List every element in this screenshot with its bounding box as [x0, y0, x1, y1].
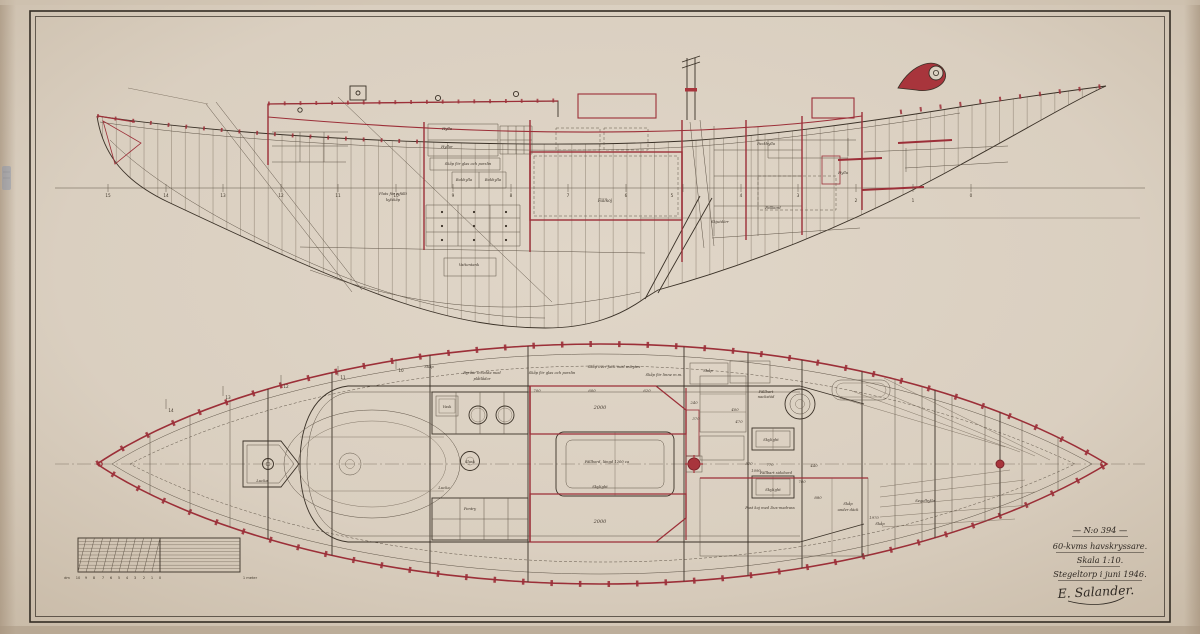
label-fallbord: Fällbord	[764, 206, 781, 210]
dim: 780	[798, 479, 806, 484]
station-number: 14	[163, 193, 169, 198]
label-lucka: Lucka	[437, 486, 449, 490]
label-fallbord: Fällbord, längd 1200 ca	[584, 460, 629, 464]
station-number: 8	[510, 193, 513, 198]
dim: 620	[643, 388, 651, 393]
station-number: 12	[283, 384, 289, 389]
dim: 570	[745, 461, 753, 466]
drawing-number: — N:o 394 —	[1073, 525, 1127, 535]
label-skylight: Skylight	[763, 438, 779, 442]
label-byraar: Byråar inredda med	[462, 370, 501, 375]
label-bokhylla: Bokhylla	[455, 178, 472, 182]
label-hylla: Hylla	[441, 127, 452, 131]
label-nackstod: Fällbart	[758, 390, 774, 394]
label-skjutdorr: Skjutdörr	[711, 220, 729, 224]
station-number: 15	[105, 193, 111, 198]
label-pentry: Pentry	[463, 507, 477, 511]
archive-stamp	[2, 166, 11, 190]
dim: 880	[814, 495, 822, 500]
label-skap-linne: Skåp för linne m.m.	[646, 372, 683, 377]
scale-tick: 10	[76, 576, 81, 580]
label-skap-under: Skåp	[843, 501, 853, 506]
scale-unit: dm	[64, 576, 70, 580]
station-number: 5	[671, 193, 674, 198]
station-number: 10	[398, 368, 404, 373]
label-slask: Slask	[465, 460, 476, 464]
label-kylskap: Plats för infällt	[378, 192, 407, 196]
station-number: 3	[797, 193, 800, 198]
label-segelhylla: Segelhylla	[915, 499, 934, 503]
station-number: 14	[168, 408, 174, 413]
dim: 1090	[751, 468, 761, 473]
backstay-fitting	[996, 460, 1004, 468]
label-lucka: Lucka	[255, 479, 267, 483]
dim: 470	[734, 419, 743, 424]
dim: 440	[809, 463, 818, 468]
dim: 400	[730, 407, 739, 412]
station-number: 7	[567, 193, 570, 198]
dim: 370	[692, 416, 700, 421]
mast-band	[685, 88, 697, 92]
label-hyllor: Hyllor	[440, 145, 453, 149]
label-vask: Vask	[443, 405, 452, 409]
label-bokhylla: Bokhylla	[484, 178, 501, 182]
label-skylight: Skylight	[592, 485, 608, 489]
scale-tick: 5	[118, 576, 120, 580]
label-skap: Skåp	[703, 368, 713, 373]
station-number: 0	[970, 193, 973, 198]
label-fallkoj: Fällkoj	[597, 198, 613, 203]
station-number: 6	[625, 193, 628, 198]
label-glas-porslin: Skåp för glas och porslin	[445, 161, 492, 166]
dim-berth-length: 2000	[593, 519, 608, 525]
dim: 770	[766, 462, 774, 467]
scale-tick: 3	[134, 576, 136, 580]
label-skap: Skåp	[875, 521, 885, 526]
label-sidobord: Fällbart sidobord	[759, 471, 793, 475]
dim-berth-length: 2000	[593, 405, 608, 411]
label-skap-under: under däck	[837, 508, 859, 512]
label-kylskap: kylskåp	[386, 197, 401, 202]
place-date: Stegeltorp i juni 1946.	[1053, 569, 1146, 579]
dim: 600	[588, 388, 596, 393]
vessel-type: 60-kvms havskryssare.	[1053, 541, 1147, 551]
station-number: 13	[225, 395, 231, 400]
station-number: 11	[335, 193, 341, 198]
label-skap-fack: Skåp över fack med avbytes	[588, 364, 641, 369]
label-packhylla: Packhylla	[756, 142, 775, 146]
station-number: 4	[740, 193, 743, 198]
station-number: 11	[340, 375, 346, 380]
dim: 1970	[869, 515, 879, 520]
label-skylight: Skylight	[765, 488, 781, 492]
dim: 700	[533, 388, 541, 393]
scale-tick: 1	[151, 576, 153, 580]
station-number: 2	[855, 198, 858, 203]
station-number: 1	[912, 198, 915, 203]
scale-meter-label: 1 meter	[243, 576, 258, 580]
label-skap-glas: Skåp för glas och porslin	[529, 370, 576, 375]
ship-drawing-canvas: 15 14 13 12 11 10 9 8 7 6 5 4 3 2 1 0 Hy…	[0, 0, 1200, 634]
dim: 240	[689, 400, 698, 405]
scale-tick: 2	[143, 576, 145, 580]
label-byraar: plåtlådor	[474, 376, 491, 381]
station-number: 9	[452, 193, 455, 198]
label-vattentank: Vattentank	[459, 263, 480, 267]
label-nackstod: nackstöd	[758, 395, 775, 399]
station-number: 12	[278, 193, 284, 198]
label-hylla-aft: Hylla	[837, 171, 848, 175]
scale-tick: 7	[102, 576, 104, 580]
drawing-scale: Skala 1:10.	[1077, 555, 1124, 565]
label-dux-koj: Fast koj med Dux-madrass	[744, 506, 795, 510]
station-number: 13	[220, 193, 226, 198]
label-skap: Skåp	[424, 364, 434, 369]
